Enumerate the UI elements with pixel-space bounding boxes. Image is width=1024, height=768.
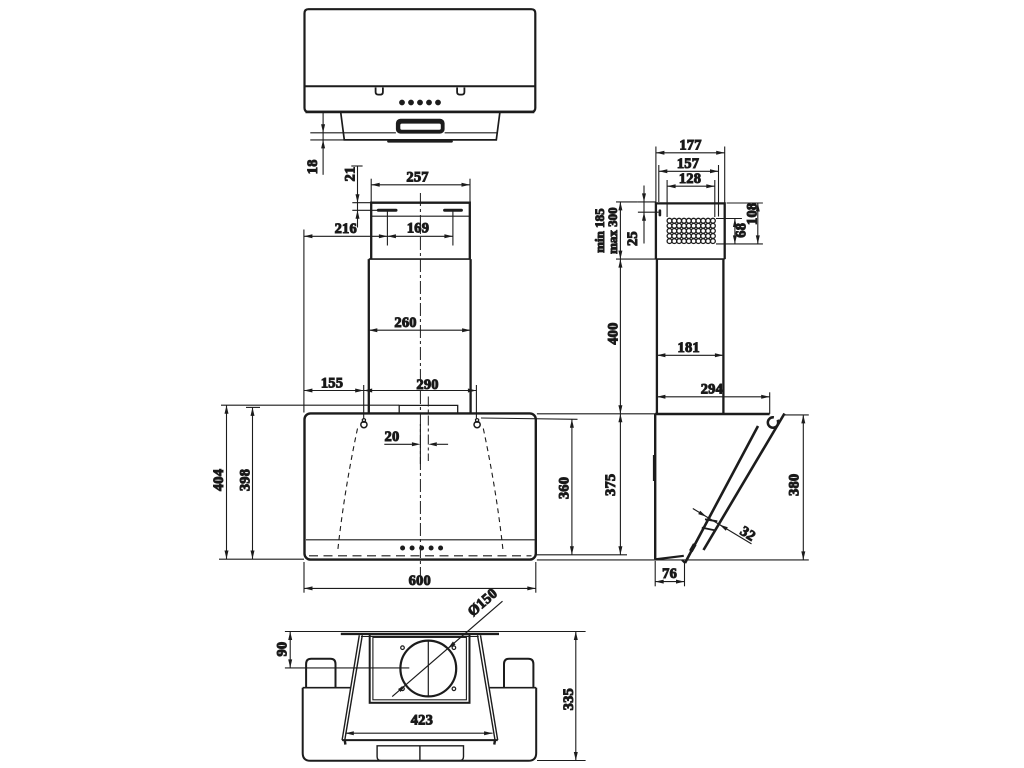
svg-text:335: 335: [561, 688, 577, 710]
svg-text:360: 360: [557, 477, 573, 499]
svg-text:157: 157: [677, 156, 699, 172]
svg-text:max 300: max 300: [605, 207, 620, 254]
svg-text:404: 404: [211, 469, 227, 491]
svg-text:128: 128: [679, 171, 701, 187]
svg-text:260: 260: [394, 315, 416, 331]
svg-text:90: 90: [274, 642, 290, 657]
svg-text:108: 108: [745, 203, 761, 225]
svg-text:76: 76: [662, 566, 677, 582]
svg-text:177: 177: [679, 138, 701, 154]
svg-text:400: 400: [606, 322, 622, 344]
svg-text:257: 257: [406, 170, 428, 186]
svg-text:169: 169: [407, 221, 429, 237]
svg-text:375: 375: [603, 474, 619, 496]
svg-text:398: 398: [238, 469, 254, 491]
svg-text:380: 380: [787, 474, 803, 496]
svg-text:423: 423: [411, 713, 433, 729]
svg-text:600: 600: [409, 573, 431, 589]
svg-text:290: 290: [416, 377, 438, 393]
svg-text:294: 294: [701, 381, 723, 397]
svg-text:181: 181: [678, 340, 700, 356]
svg-text:18: 18: [305, 159, 321, 174]
svg-text:20: 20: [385, 429, 400, 445]
svg-text:155: 155: [321, 375, 343, 391]
svg-text:21: 21: [342, 167, 358, 182]
svg-text:25: 25: [625, 231, 641, 246]
svg-text:216: 216: [335, 221, 357, 237]
